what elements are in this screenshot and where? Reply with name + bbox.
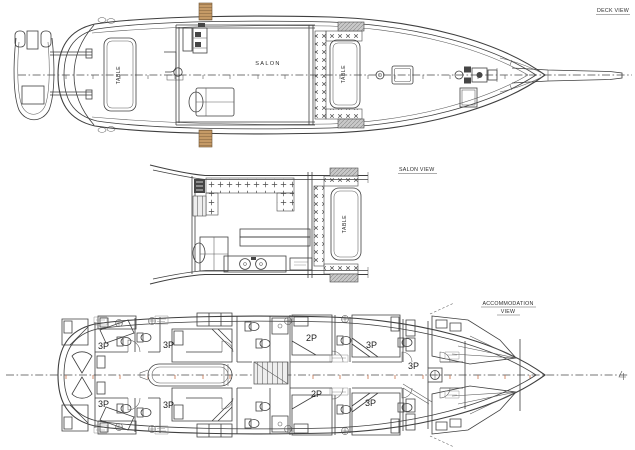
dinette-bench [314,186,324,266]
cabin-label: 3P [98,399,109,409]
accommodation-furniture-port [62,377,516,447]
aft-table-label: TABLE [116,66,122,85]
davit-bracket [86,49,92,58]
dinghy-inner [18,42,49,114]
double-bed [172,329,232,362]
salon-interior [192,176,312,274]
deck-station-ticks [66,75,505,79]
fridge-unit [290,258,312,270]
v-berth-pillows [436,320,461,331]
salon-fwd-bulkhead [308,172,312,278]
boarding-step [199,3,212,20]
salon-label: SALON [255,61,280,67]
shower-drain [278,324,282,328]
mast-step [428,368,442,382]
companionway-steps [193,196,206,216]
dinghy-bow-tube [15,31,25,47]
settee-end-cap [338,119,364,128]
cabin-label: 2P [311,389,322,399]
foredeck-table: TABLE [330,40,360,108]
ga-drawing: DECK VIEW [0,0,635,450]
dinghy-console [27,31,38,49]
accommodation-title-line1: ACCOMMODATION [482,301,533,307]
dinghy-engine-box [22,86,44,104]
dinghy-hull [14,38,54,120]
deck-view-title: DECK VIEW [597,8,629,14]
accommodation-station-ticks [66,375,530,379]
dinghy-bow-tube [41,31,51,47]
fore-table-label: TABLE [341,65,347,84]
dinghy [14,31,92,120]
dinette-end-cap [330,274,358,282]
settee-cushions [206,178,294,193]
cabin-label: 3P [163,400,174,410]
dinette-end-cap [330,168,358,176]
deck-view: DECK VIEW [14,3,632,147]
companionway-stairs [254,362,288,384]
davit-arms [50,52,92,95]
steering-gear [72,352,92,373]
locker [97,356,105,368]
drawing-sheet: DECK VIEW [0,0,635,450]
shower-tray [272,318,288,334]
davit-bracket [86,90,92,99]
centerline-symbol [619,371,626,380]
cabin-label: 3P [408,361,419,371]
cabin-label: 3P [366,340,377,350]
boarding-step [199,130,212,147]
stove [224,256,286,272]
deck-hatch [460,88,477,107]
settee-cushions [206,193,218,215]
settee-end-cap [338,22,364,31]
dinette: TABLE [314,168,361,282]
accommodation-title-line2: VIEW [501,309,516,315]
cabin-label: 3P [365,398,376,408]
salon-helm-seat [193,237,228,271]
hull-dashed-ref [430,303,454,314]
wardrobe [197,313,232,326]
accommodation-furniture-starboard [62,303,516,373]
salon-view-title: SALON VIEW [399,167,434,173]
dinette-bench [324,176,358,186]
cabin-label: 2P [306,333,317,343]
deckhouse: SALON [176,23,315,125]
helm-pedestal [164,52,183,80]
dinette-table-label: TABLE [342,215,348,234]
accommodation-view: ACCOMMODATION VIEW [6,301,628,447]
salon-view: SALON VIEW [150,165,437,284]
settee-cushions [277,193,294,211]
double-bed [352,315,400,357]
cabin-label: 3P [163,340,174,350]
aft-deck-table: TABLE [104,38,136,111]
galley-counter [240,229,310,246]
dinette-bench [324,264,358,274]
cabin-label: 3P [98,341,109,351]
helm-seat [189,88,234,116]
